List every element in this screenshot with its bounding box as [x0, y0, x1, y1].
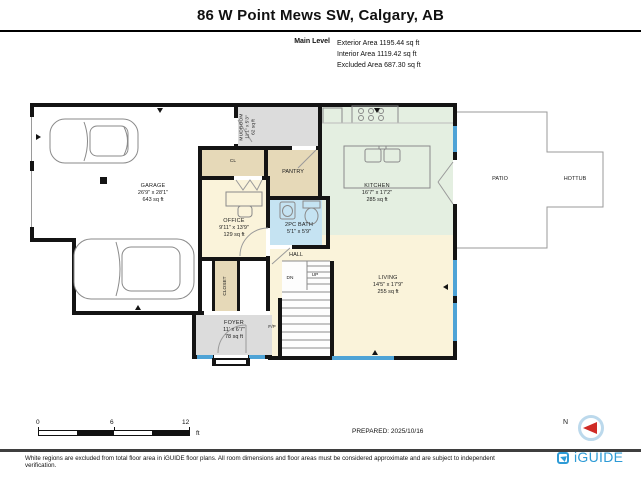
- scale-segment: [77, 431, 115, 435]
- disclaimer-text: White regions are excluded from total fl…: [25, 455, 525, 469]
- garage-label: GARAGE 26'9" x 28'1" 643 sq ft: [138, 183, 168, 204]
- scale-bar: [38, 430, 190, 436]
- kitchen-label: KITCHEN 16'7" x 17'2" 285 sq ft: [362, 183, 392, 204]
- office-label: OFFICE 9'11" x 13'9" 129 sq ft: [219, 218, 249, 239]
- prepared-date: PREPARED: 2025/10/16: [352, 428, 423, 435]
- scale-segment: [39, 431, 77, 435]
- iguide-logo-text: iGUIDE: [574, 449, 623, 465]
- car-icon: [74, 239, 194, 299]
- stairs-dn-label: DN: [287, 276, 294, 282]
- hottub-label: HOTTUB: [564, 176, 587, 183]
- patio-label: PATIO: [492, 176, 508, 183]
- floorplan-page: 86 W Point Mews SW, Calgary, AB Main Lev…: [0, 0, 641, 500]
- car-icon: [50, 119, 138, 163]
- scale-segment: [114, 431, 152, 435]
- north-label: N: [563, 419, 568, 426]
- closet-label: CLOSET: [223, 276, 229, 295]
- cl-label: CL: [230, 159, 236, 165]
- footer-divider: [0, 449, 641, 452]
- scale-tick-12: 12: [182, 419, 189, 426]
- stairs-up-label: UP: [312, 273, 319, 279]
- floor-plan-canvas: [0, 0, 641, 500]
- hall-label: HALL: [289, 252, 303, 259]
- scale-tick-0: 0: [36, 419, 40, 426]
- north-arrow-icon: [583, 422, 597, 434]
- bath-label: 2PC BATH 5'1" x 5'9": [285, 222, 313, 236]
- mudroom-label: MUDROOM 11'1" x 5'3" 62 sq ft: [240, 113, 259, 140]
- scale-segment: [152, 431, 190, 435]
- pantry-label: PANTRY: [282, 169, 304, 176]
- living-label: LIVING 14'5" x 17'9" 255 sq ft: [373, 275, 403, 296]
- foyer-label: FOYER 11' x 6'7" 78 sq ft: [223, 320, 245, 341]
- scale-tick-6: 6: [110, 419, 114, 426]
- fireplace-label: F/P: [268, 325, 275, 331]
- front-door: [212, 358, 250, 366]
- scale-unit: ft: [196, 430, 200, 437]
